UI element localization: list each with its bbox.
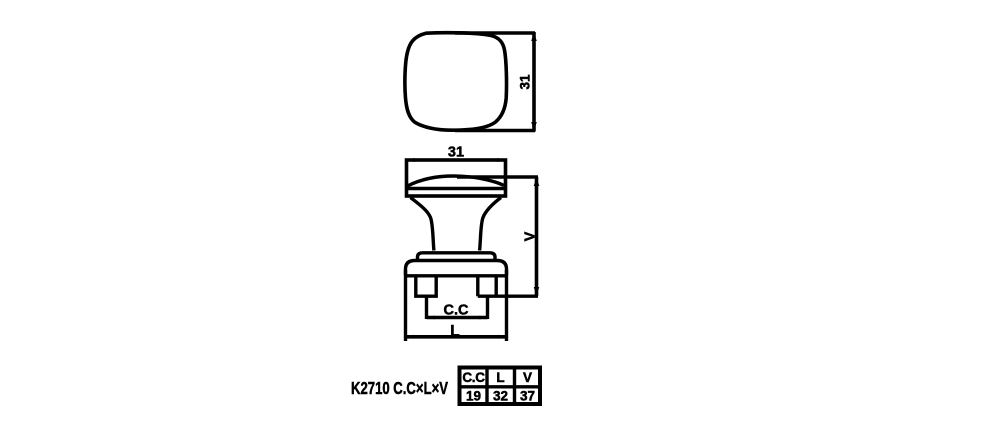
svg-text:31: 31 — [518, 74, 533, 90]
svg-text:C.C: C.C — [462, 370, 485, 385]
svg-text:K2710 C.C×L×V: K2710 C.C×L×V — [351, 378, 448, 398]
svg-text:V: V — [523, 370, 532, 385]
svg-text:V: V — [523, 231, 539, 241]
svg-text:31: 31 — [448, 145, 464, 161]
svg-text:32: 32 — [493, 389, 508, 404]
svg-text:19: 19 — [466, 389, 481, 404]
svg-text:L: L — [496, 370, 504, 385]
svg-text:L: L — [450, 323, 459, 340]
svg-text:37: 37 — [520, 389, 535, 404]
svg-text:C.C: C.C — [444, 303, 470, 319]
